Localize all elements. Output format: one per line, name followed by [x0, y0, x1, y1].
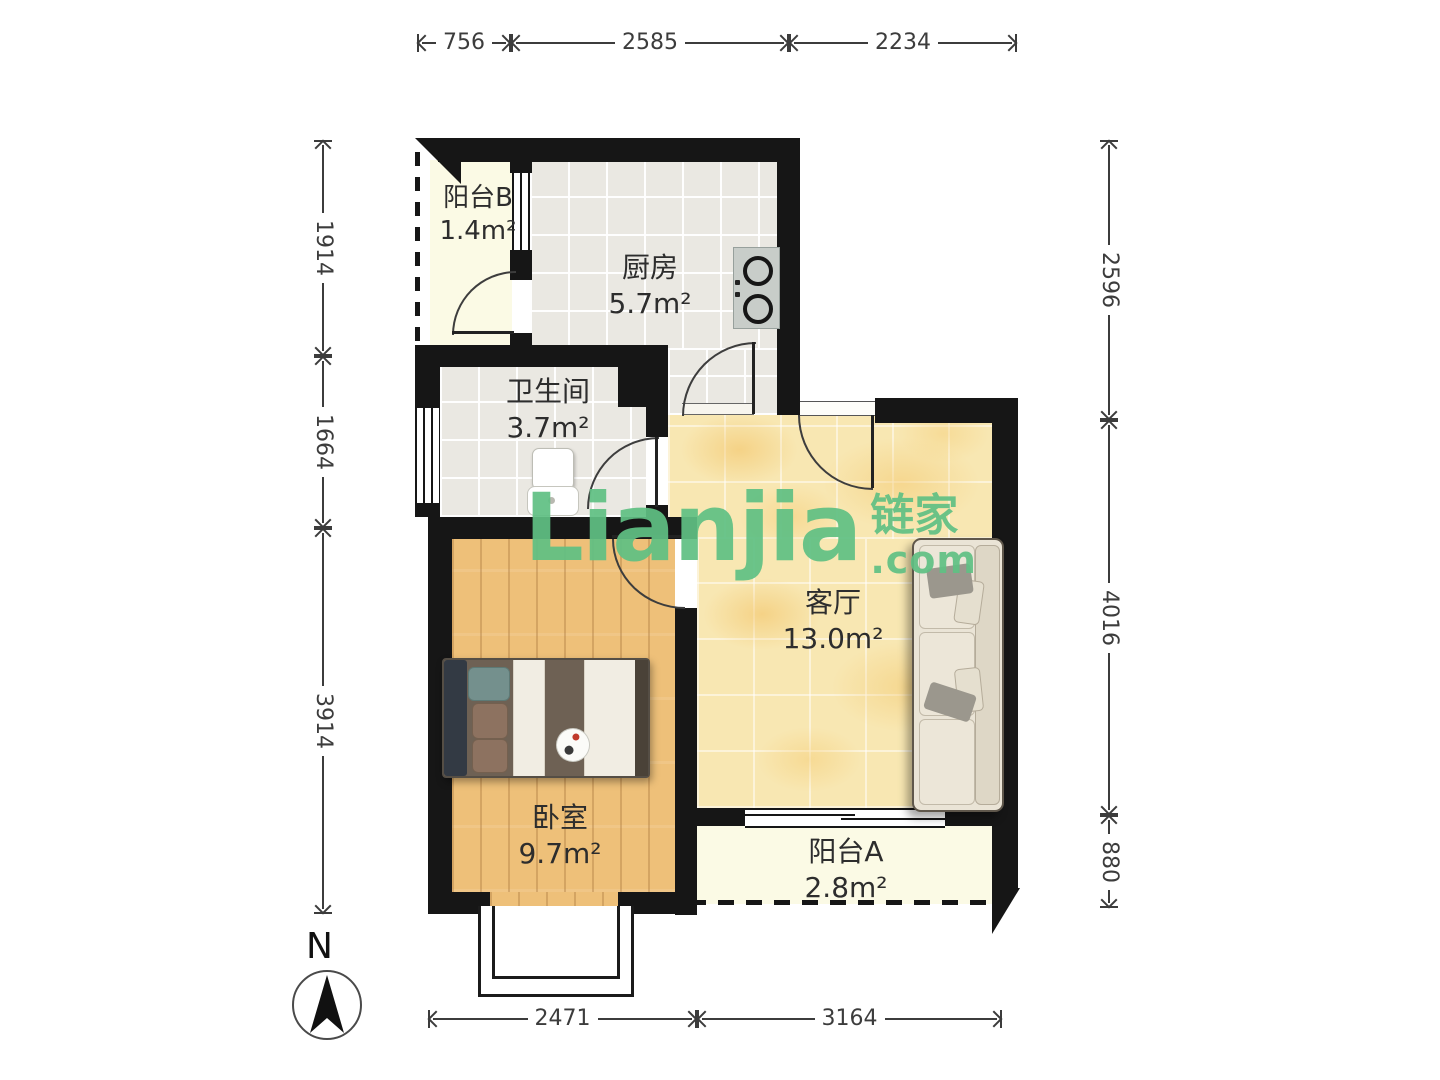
compass-north-label: N — [306, 926, 333, 967]
dimension-right-2: 4016 — [1096, 420, 1122, 815]
bed-headboard — [444, 660, 467, 776]
dimension-bottom-2: 3164 — [697, 1006, 1002, 1032]
room-label-balcony-b: 阳台B 1.4m² — [439, 182, 516, 249]
stove-knob — [735, 292, 740, 297]
tray-cup — [571, 733, 580, 742]
dimension-top-1: 756 — [417, 30, 511, 56]
wall-bathroom-right-upper — [646, 407, 668, 437]
dimension-top-3: 2234 — [789, 30, 1017, 56]
stove-knob — [735, 280, 740, 285]
tray-plate — [563, 744, 575, 756]
stove-burner-icon — [743, 294, 773, 324]
dimension-top-2: 2585 — [511, 30, 789, 56]
wall-balconyb-divider-top — [510, 138, 532, 173]
floor-plan: Lianjia 链家 .com 阳台B 1.4m² 厨房 5.7m² 卫生间 3… — [0, 0, 1440, 1080]
sliding-window-rail-left — [745, 814, 855, 816]
balcony-a-sliding-window — [745, 808, 945, 828]
sofa-seat — [919, 719, 975, 805]
dimension-left-2: 1664 — [310, 356, 336, 528]
wall-top — [438, 138, 800, 162]
bed-sheet — [584, 660, 637, 776]
bed-pillow-teal — [468, 667, 510, 701]
watermark-cn-text: 链家 — [870, 494, 977, 538]
watermark-domain-text: .com — [870, 541, 977, 579]
wall-chamfer-bottom-right — [992, 888, 1020, 934]
wall-bedroom-right — [675, 608, 697, 915]
room-label-bathroom: 卫生间 3.7m² — [506, 374, 590, 446]
wall-shaft-block — [618, 345, 668, 407]
room-label-living-room: 客厅 13.0m² — [783, 585, 884, 657]
dimension-right-1: 2596 — [1096, 140, 1122, 420]
wall-balconya-left — [697, 808, 745, 826]
dimension-bottom-1: 2471 — [428, 1006, 697, 1032]
bathroom-window — [415, 408, 440, 503]
dimension-left-3: 3914 — [310, 528, 336, 914]
bed-pillow-brown — [472, 739, 508, 773]
balcony-b-door-leaf — [452, 331, 514, 334]
dimension-left-1: 1914 — [310, 140, 336, 356]
bay-window-inner — [492, 906, 620, 979]
entry-door-leaf — [871, 415, 874, 488]
bed-sheet — [513, 660, 545, 776]
watermark-logo-text: Lianjia — [524, 482, 860, 576]
entry-threshold — [800, 401, 875, 416]
room-label-bedroom: 卧室 9.7m² — [518, 800, 601, 872]
north-indicator — [292, 970, 362, 1040]
room-label-kitchen: 厨房 5.7m² — [608, 250, 691, 322]
lianjia-watermark: Lianjia 链家 .com — [524, 482, 977, 579]
bed-pillow-brown — [472, 703, 508, 739]
kitchen-door-leaf — [752, 342, 755, 414]
stove-burner-icon — [743, 256, 773, 286]
dimension-right-3: 880 — [1096, 815, 1122, 908]
sliding-window-rail-right — [841, 818, 945, 820]
balcony-b-open-boundary — [415, 152, 420, 350]
north-arrow-icon — [294, 972, 360, 1038]
room-label-balcony-a: 阳台A 2.8m² — [804, 834, 887, 906]
wall-kitchen-right — [777, 138, 800, 415]
bed-foot-rail — [635, 660, 648, 776]
gas-stove — [733, 247, 780, 329]
bed — [442, 658, 650, 778]
